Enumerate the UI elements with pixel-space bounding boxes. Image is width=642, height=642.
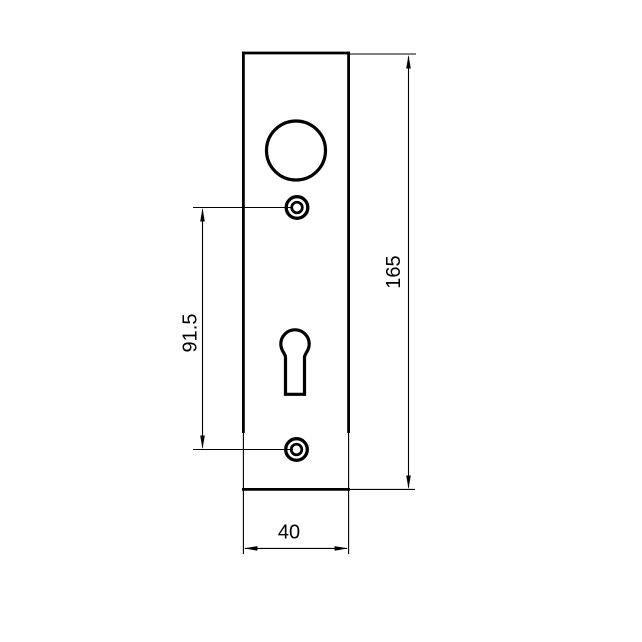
technical-drawing: 165 91.5 40 <box>0 0 642 642</box>
drawing-background <box>0 0 642 642</box>
drawing-canvas: 165 91.5 40 <box>0 0 642 642</box>
spacing-dimension-label: 91.5 <box>180 314 202 353</box>
height-dimension-label: 165 <box>383 255 405 288</box>
width-dimension-label: 40 <box>278 522 300 544</box>
